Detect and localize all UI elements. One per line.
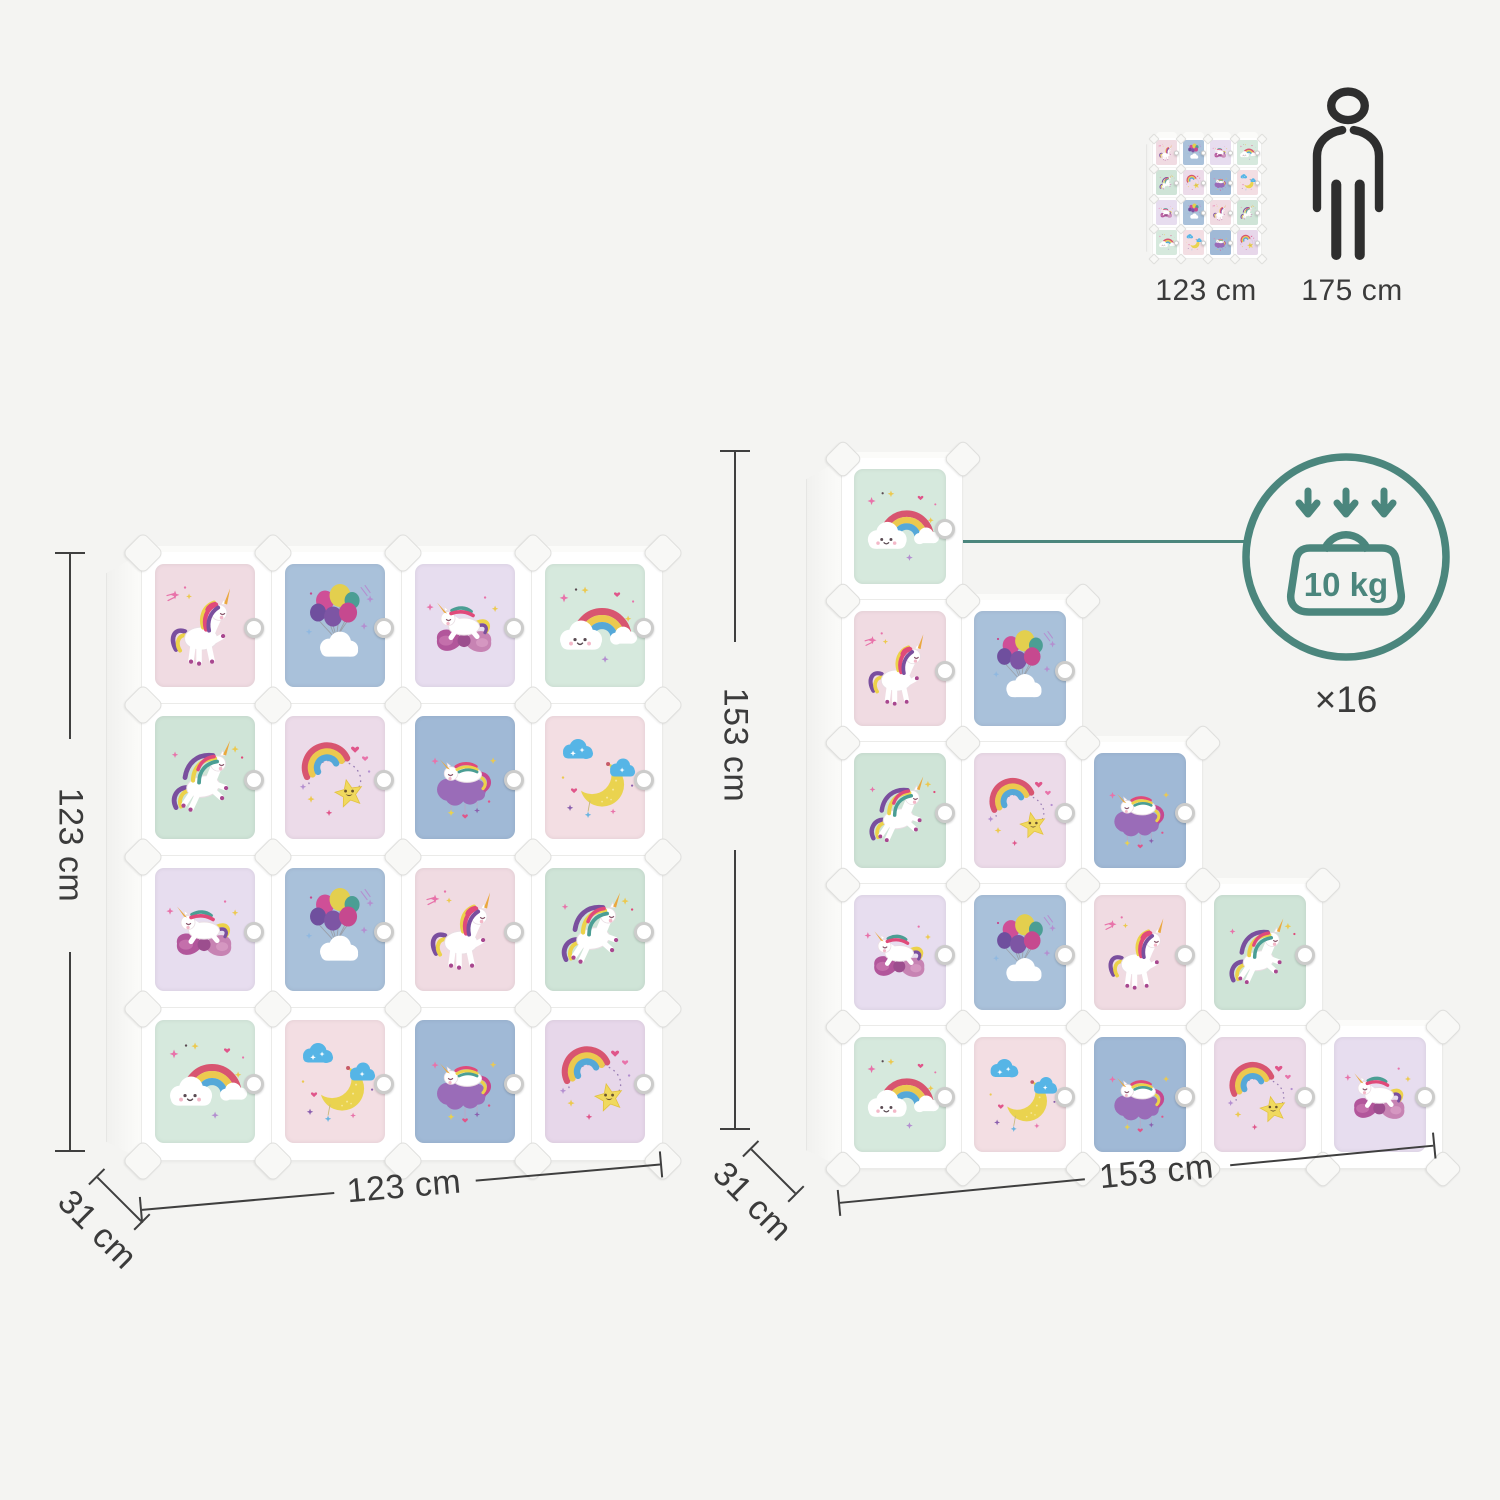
door-knob-icon <box>1295 1087 1315 1107</box>
balloons-cloud-icon <box>285 868 385 991</box>
cube-door <box>1153 228 1180 258</box>
cube-door <box>1082 1026 1202 1168</box>
rainbow-cloud-icon <box>545 564 645 687</box>
unicorn-standing-panel <box>854 611 946 726</box>
door-knob-icon <box>634 1074 654 1094</box>
unicorn-sleeping-panel <box>1094 753 1186 868</box>
balloons-cloud-panel <box>974 611 1066 726</box>
rainbow-star-icon <box>285 716 385 839</box>
unicorn-standing-panel <box>155 564 255 687</box>
unicorn-sleeping-icon <box>415 716 515 839</box>
cube-door <box>1153 198 1180 228</box>
unicorn-jumping-panel <box>854 753 946 868</box>
door-knob-icon <box>1174 151 1179 156</box>
dimension-line <box>734 850 736 1128</box>
unicorn-on-bow-icon <box>415 564 515 687</box>
cube-door <box>1234 228 1261 258</box>
rainbow-cloud-panel <box>854 1037 946 1152</box>
badge-circle <box>1246 457 1446 657</box>
cube-door <box>842 884 962 1026</box>
door-knob-icon <box>504 1074 524 1094</box>
moon-clouds-panel <box>545 716 645 839</box>
rainbow-star-panel <box>974 753 1066 868</box>
door-knob-icon <box>504 922 524 942</box>
weight-capacity-label: 10 kg <box>1304 566 1388 603</box>
unicorn-jumping-icon <box>854 753 946 868</box>
door-knob-icon <box>1174 241 1179 246</box>
door-knob-icon <box>374 922 394 942</box>
cube-door <box>1180 228 1207 258</box>
cube-door <box>402 1008 532 1160</box>
unicorn-standing-icon <box>1094 895 1186 1010</box>
unicorn-jumping-panel <box>1214 895 1306 1010</box>
dimension-line <box>734 452 736 642</box>
staircase-organizer-side <box>806 458 843 1168</box>
unicorn-on-bow-panel <box>415 564 515 687</box>
cube-door <box>272 856 402 1008</box>
cube-door <box>272 552 402 704</box>
cube-door <box>842 742 962 884</box>
comparison-person-height-label: 175 cm <box>1301 274 1402 308</box>
max-load-badge: 10 kg <box>1238 449 1454 665</box>
cube-door <box>962 884 1082 1026</box>
unicorn-jumping-panel <box>155 716 255 839</box>
unicorn-sleeping-icon <box>1094 1037 1186 1152</box>
unicorn-jumping-icon <box>155 716 255 839</box>
door-knob-icon <box>374 618 394 638</box>
dimension-tick <box>720 1128 750 1130</box>
door-knob-icon <box>1175 1087 1195 1107</box>
door-knob-icon <box>1255 211 1260 216</box>
door-knob-icon <box>1415 1087 1435 1107</box>
rainbow-star-icon <box>1214 1037 1306 1152</box>
rainbow-star-panel <box>1214 1037 1306 1152</box>
cube-count-label: ×16 <box>1315 679 1378 721</box>
unicorn-jumping-icon <box>545 868 645 991</box>
cube-door <box>532 552 662 704</box>
rainbow-cloud-icon <box>155 1020 255 1143</box>
cube-door <box>1082 742 1202 884</box>
unicorn-sleeping-icon <box>415 1020 515 1143</box>
unicorn-standing-icon <box>415 868 515 991</box>
cube-door <box>1207 138 1234 168</box>
door-knob-icon <box>244 922 264 942</box>
cube-door <box>142 856 272 1008</box>
moon-clouds-panel <box>974 1037 1066 1152</box>
cube-door <box>142 552 272 704</box>
cube-door <box>402 704 532 856</box>
cube-door <box>962 600 1082 742</box>
cube-door <box>402 856 532 1008</box>
door-knob-icon <box>1175 945 1195 965</box>
door-knob-icon <box>1201 241 1206 246</box>
door-knob-icon <box>1175 803 1195 823</box>
cube-door <box>1234 168 1261 198</box>
square-height-label: 123 cm <box>51 788 90 903</box>
cube-door <box>842 458 962 600</box>
square-width-label: 123 cm <box>345 1162 462 1211</box>
unicorn-standing-icon <box>155 564 255 687</box>
unicorn-standing-panel <box>1094 895 1186 1010</box>
door-knob-icon <box>374 1074 394 1094</box>
door-knob-icon <box>1228 181 1233 186</box>
cube-door <box>1234 198 1261 228</box>
unicorn-sleeping-panel <box>415 1020 515 1143</box>
unicorn-on-bow-panel <box>155 868 255 991</box>
unicorn-on-bow-panel <box>854 895 946 1010</box>
moon-clouds-panel <box>285 1020 385 1143</box>
rainbow-star-icon <box>974 753 1066 868</box>
rainbow-star-panel <box>545 1020 645 1143</box>
rainbow-star-panel <box>285 716 385 839</box>
door-knob-icon <box>1255 151 1260 156</box>
cube-door <box>1234 138 1261 168</box>
door-knob-icon <box>1201 211 1206 216</box>
dimension-line <box>1230 1145 1433 1167</box>
dimension-line <box>142 1192 334 1211</box>
door-knob-icon <box>1174 211 1179 216</box>
door-knob-icon <box>1295 945 1315 965</box>
door-knob-icon <box>634 618 654 638</box>
balloons-cloud-icon <box>974 895 1066 1010</box>
door-knob-icon <box>1228 211 1233 216</box>
door-knob-icon <box>244 770 264 790</box>
door-knob-icon <box>1255 241 1260 246</box>
door-knob-icon <box>244 618 264 638</box>
door-knob-icon <box>1055 803 1075 823</box>
door-knob-icon <box>1055 1087 1075 1107</box>
cube-door <box>1180 138 1207 168</box>
triple-down-arrows-icon <box>1299 491 1393 514</box>
cube-door <box>1202 884 1322 1026</box>
cube-door <box>1207 228 1234 258</box>
cube-door <box>1207 198 1234 228</box>
cube-door <box>1180 168 1207 198</box>
door-knob-icon <box>1228 241 1233 246</box>
door-knob-icon <box>1201 151 1206 156</box>
product-dimensions-image: 123 cm 175 cm 10 kg ×16 123 cm <box>0 0 1500 1500</box>
cube-door <box>272 1008 402 1160</box>
unicorn-standing-panel <box>415 868 515 991</box>
unicorn-sleeping-panel <box>415 716 515 839</box>
balloons-cloud-panel <box>285 868 385 991</box>
rainbow-star-icon <box>545 1020 645 1143</box>
door-knob-icon <box>935 945 955 965</box>
balloons-cloud-icon <box>285 564 385 687</box>
door-knob-icon <box>244 1074 264 1094</box>
cube-door <box>142 1008 272 1160</box>
unicorn-sleeping-icon <box>1094 753 1186 868</box>
door-knob-icon <box>634 922 654 942</box>
door-knob-icon <box>935 1087 955 1107</box>
door-knob-icon <box>1255 181 1260 186</box>
door-knob-icon <box>1055 945 1075 965</box>
cube-door <box>1153 138 1180 168</box>
door-knob-icon <box>935 803 955 823</box>
balloons-cloud-icon <box>974 611 1066 726</box>
person-silhouette-icon <box>1306 84 1390 260</box>
cube-door <box>842 1026 962 1168</box>
cube-door <box>142 704 272 856</box>
rainbow-cloud-icon <box>854 469 946 584</box>
unicorn-jumping-icon <box>1214 895 1306 1010</box>
balloons-cloud-panel <box>285 564 385 687</box>
comparison-organizer-height-label: 123 cm <box>1155 274 1256 308</box>
cube-door <box>962 742 1082 884</box>
door-knob-icon <box>504 770 524 790</box>
moon-clouds-icon <box>545 716 645 839</box>
cube-door <box>1153 168 1180 198</box>
cube-door <box>402 552 532 704</box>
unicorn-on-bow-icon <box>854 895 946 1010</box>
unicorn-sleeping-panel <box>1094 1037 1186 1152</box>
door-knob-icon <box>1055 661 1075 681</box>
door-knob-icon <box>1174 181 1179 186</box>
cube-door <box>532 856 662 1008</box>
rainbow-cloud-panel <box>155 1020 255 1143</box>
unicorn-jumping-panel <box>545 868 645 991</box>
cube-door <box>842 600 962 742</box>
moon-clouds-icon <box>974 1037 1066 1152</box>
unicorn-on-bow-icon <box>155 868 255 991</box>
staircase-height-label: 153 cm <box>716 688 755 803</box>
moon-clouds-icon <box>285 1020 385 1143</box>
dimension-line <box>840 1178 1085 1204</box>
cube-door <box>532 704 662 856</box>
unicorn-standing-icon <box>854 611 946 726</box>
dimension-tick <box>55 1150 85 1152</box>
cube-door <box>532 1008 662 1160</box>
cube-door <box>272 704 402 856</box>
dimension-line <box>69 554 71 739</box>
cube-door <box>1207 168 1234 198</box>
door-knob-icon <box>935 519 955 539</box>
cube-door <box>1180 198 1207 228</box>
dimension-line <box>476 1164 660 1182</box>
rainbow-cloud-icon <box>854 1037 946 1152</box>
rainbow-cloud-panel <box>545 564 645 687</box>
door-knob-icon <box>634 770 654 790</box>
door-knob-icon <box>935 661 955 681</box>
cube-door <box>962 1026 1082 1168</box>
door-knob-icon <box>1201 181 1206 186</box>
balloons-cloud-panel <box>974 895 1066 1010</box>
rainbow-cloud-panel <box>854 469 946 584</box>
door-knob-icon <box>504 618 524 638</box>
dimension-line <box>69 952 71 1150</box>
door-knob-icon <box>1228 151 1233 156</box>
door-knob-icon <box>374 770 394 790</box>
cube-door <box>1082 884 1202 1026</box>
